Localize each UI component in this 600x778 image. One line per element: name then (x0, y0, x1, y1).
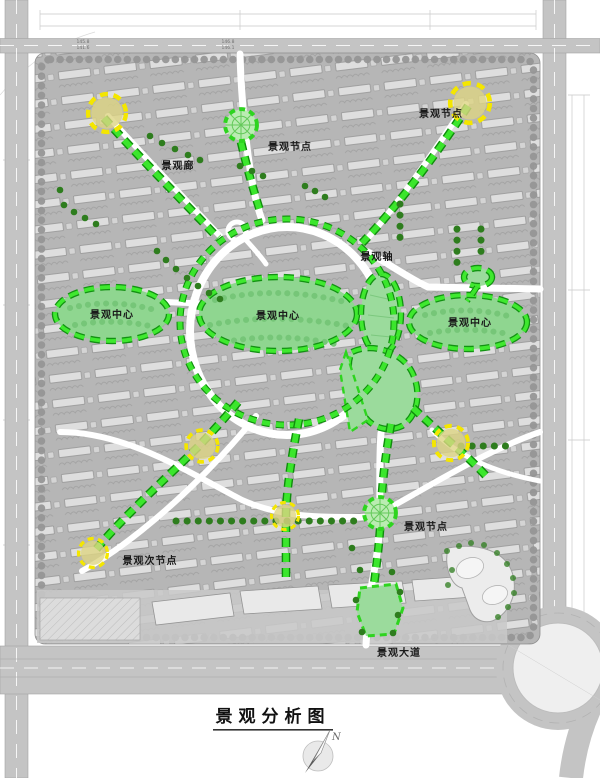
elevation-label-3: 146.8 (222, 39, 235, 45)
label-landscape-center-left: 景观中心 (90, 308, 134, 321)
north-label: N (331, 732, 342, 743)
label-landscape-center-middle: 景观中心 (256, 309, 300, 322)
landscape-analysis-page: 景观廊 景观节点 景观节点 景观轴 景观中心 景观中心 景观中心 景观次节点 景… (0, 0, 600, 778)
page-title: 景观分析图 (216, 706, 331, 727)
node-yellow-southeast (434, 426, 468, 460)
label-landscape-avenue: 景观大道 (377, 646, 421, 659)
label-landscape-sub-node: 景观次节点 (123, 554, 178, 567)
label-landscape-center-right: 景观中心 (448, 316, 492, 329)
elevation-label-2: 141.6 (77, 45, 90, 51)
node-yellow-southwest-lower (79, 539, 108, 568)
elevation-label-1: 145.8 (77, 39, 90, 45)
node-yellow-northwest (88, 94, 126, 132)
node-yellow-southwest-upper (186, 430, 218, 462)
landscape-analysis-plan: 景观廊 景观节点 景观节点 景观轴 景观中心 景观中心 景观中心 景观次节点 景… (0, 0, 600, 778)
title-block: 景观分析图 (213, 706, 333, 731)
label-landscape-node-south: 景观节点 (404, 520, 448, 533)
label-landscape-corridor: 景观廊 (162, 159, 195, 172)
label-landscape-node-northeast: 景观节点 (419, 107, 463, 120)
label-landscape-axis: 景观轴 (361, 250, 394, 263)
label-landscape-node-north: 景观节点 (268, 140, 312, 153)
elevation-label-4: 146.1 (222, 45, 235, 51)
title-underline (213, 729, 333, 731)
node-yellow-south-center (272, 503, 299, 530)
